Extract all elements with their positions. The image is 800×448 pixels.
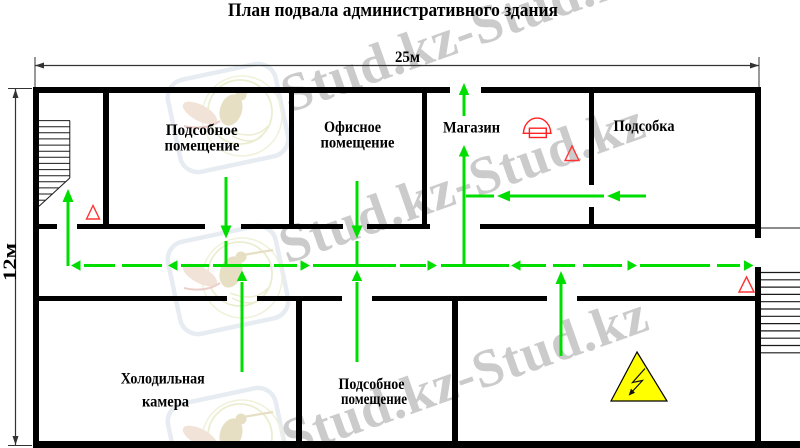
svg-text:помещение: помещение (341, 391, 407, 408)
svg-text:Магазин: Магазин (443, 120, 500, 137)
svg-text:Подсобка: Подсобка (614, 118, 675, 135)
svg-text:помещение: помещение (321, 135, 395, 152)
svg-text:12м: 12м (0, 243, 21, 281)
svg-text:25м: 25м (395, 49, 420, 66)
svg-text:Stud.kz-Stud.kz: Stud.kz-Stud.kz (274, 284, 656, 448)
svg-text:помещение: помещение (165, 138, 240, 155)
svg-text:План подвала административного: План подвала административного здания (228, 0, 558, 21)
svg-text:камера: камера (142, 394, 189, 411)
svg-text:Подсобное: Подсобное (166, 122, 238, 139)
svg-text:Офисное: Офисное (324, 119, 381, 136)
svg-text:Холодильная: Холодильная (121, 371, 205, 388)
